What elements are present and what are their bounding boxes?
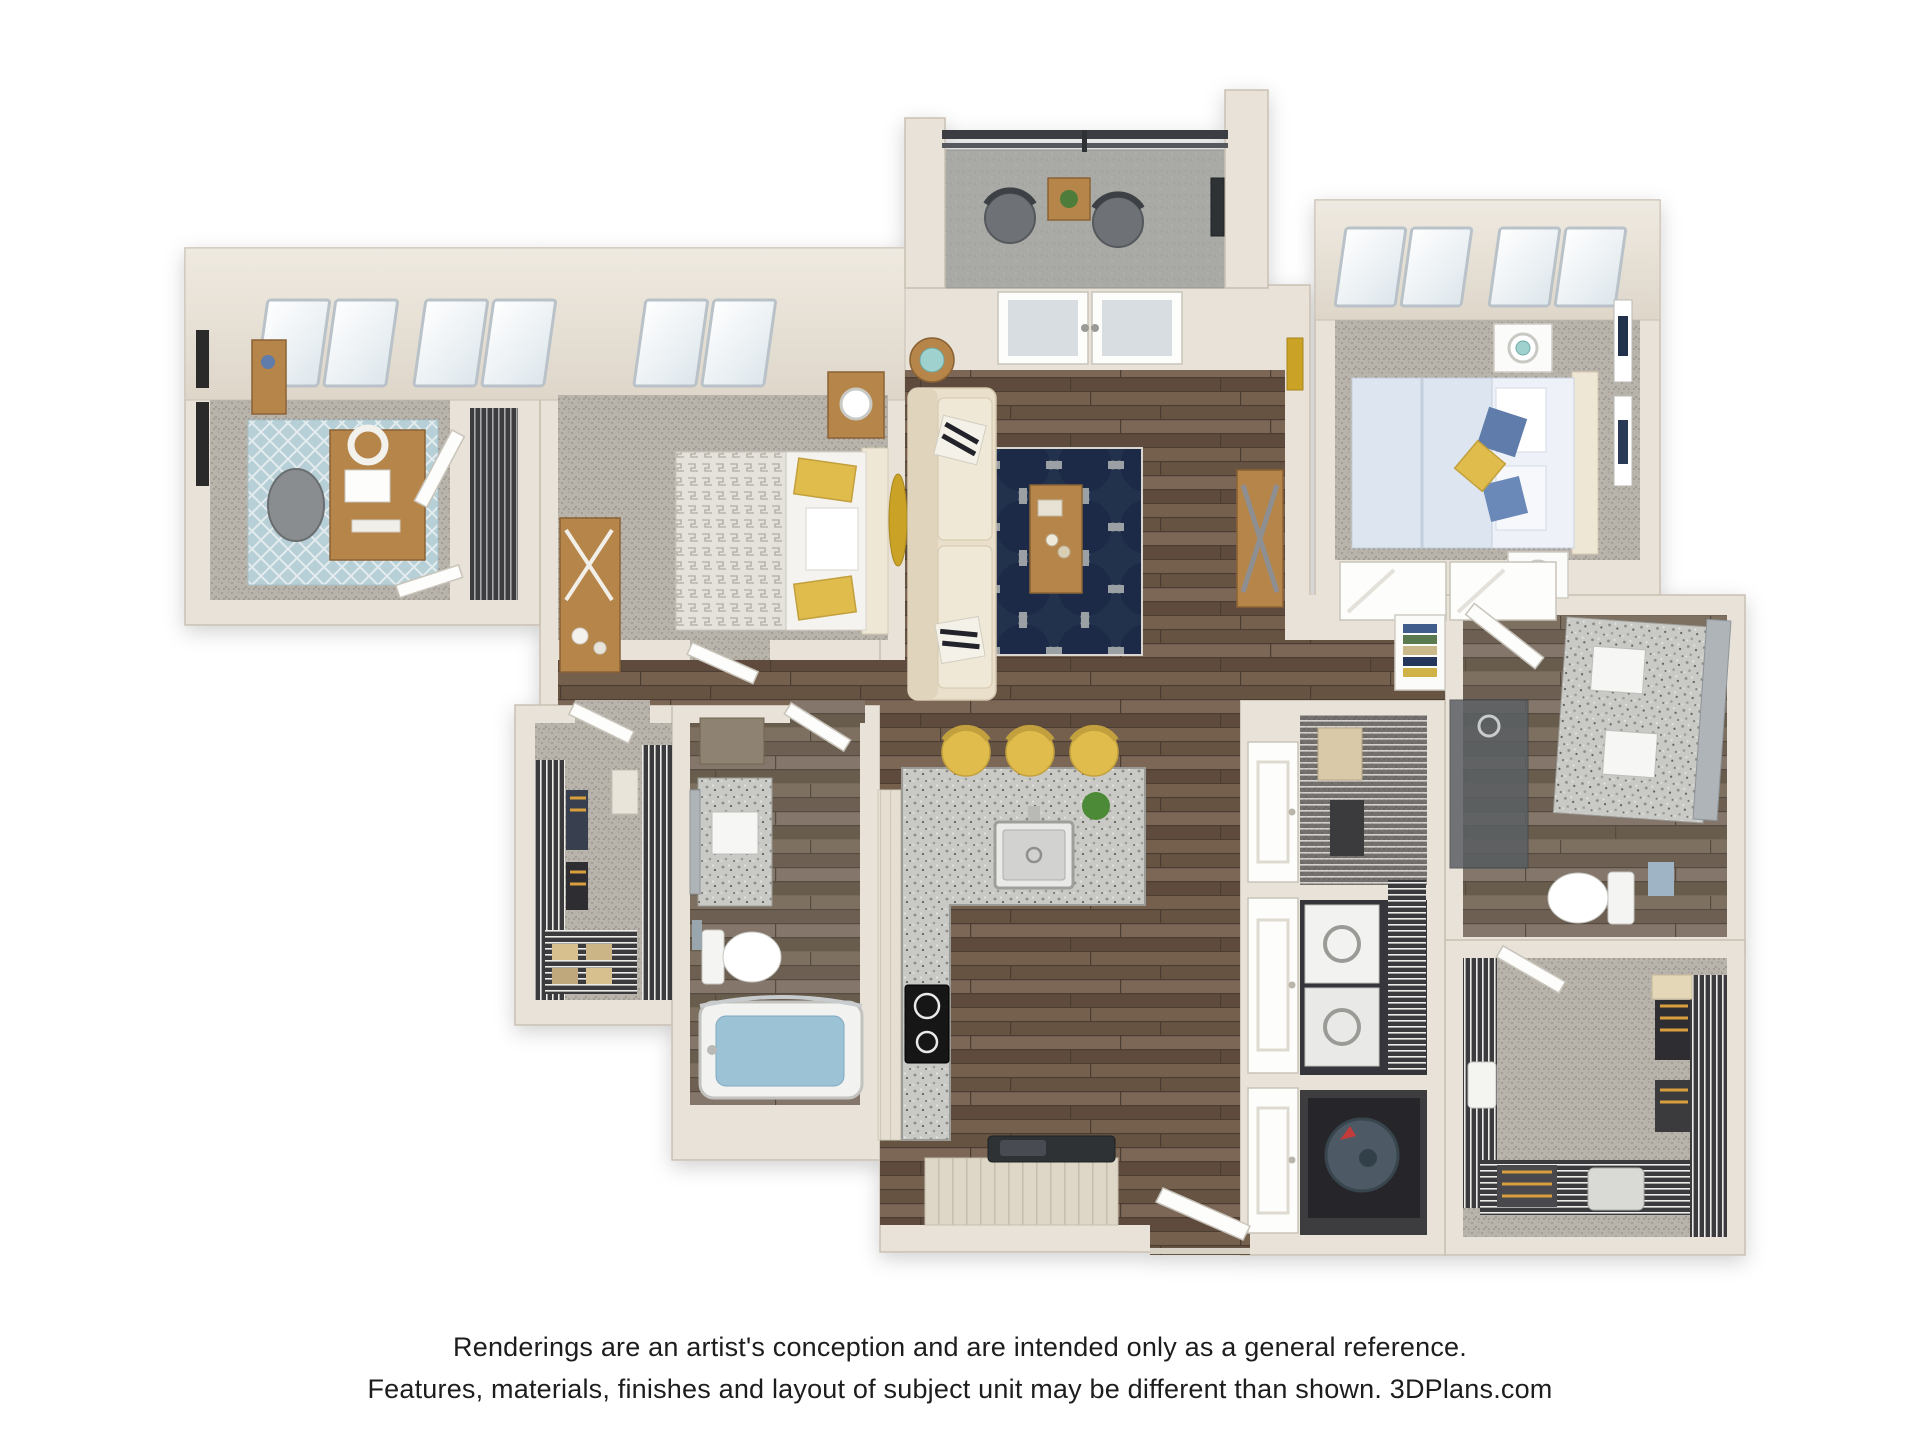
hall-right <box>1395 615 1445 690</box>
patio-chair-right <box>1093 194 1143 247</box>
closet1-towels <box>612 770 638 814</box>
entry-threshold <box>1150 1248 1250 1254</box>
coffee-table-mug-2 <box>1058 546 1070 558</box>
office-laptop <box>345 470 390 502</box>
floor-plan-page: Renderings are an artist's conception an… <box>0 0 1920 1440</box>
kitchen-faucet <box>1028 806 1040 820</box>
entry-shiplap-wall <box>925 1158 1118 1225</box>
pantry-basket <box>1318 728 1362 780</box>
office-shelf-decor <box>261 355 275 369</box>
pantry-items <box>1330 800 1364 856</box>
patio-chair-left <box>985 190 1035 243</box>
coffee-table-magazine <box>1038 500 1062 516</box>
bed1-pillow-white <box>806 508 858 570</box>
living-side-table <box>910 338 954 382</box>
hall-bookshelf-books <box>1403 624 1437 677</box>
ledge-gold-books <box>1287 338 1303 390</box>
french-door-glass-left <box>1008 300 1078 356</box>
door-handle-icon <box>1091 324 1099 332</box>
bath2-sink-1 <box>1591 646 1646 694</box>
bath2-towel <box>1648 862 1674 896</box>
cooktop-icon <box>905 985 949 1063</box>
kitchen-plant-icon <box>1082 792 1110 820</box>
office-closet-shelving <box>470 408 518 600</box>
closet1-shoe-shelf <box>545 930 637 994</box>
kitchen-bar-stools <box>942 728 1118 776</box>
bathtub-icon <box>700 997 862 1098</box>
living-table-lamp <box>920 348 944 372</box>
office-wall-art-2 <box>196 402 209 486</box>
entry-bench-cushion <box>1000 1140 1046 1156</box>
bath2-vanity <box>1553 617 1731 823</box>
tub-faucet <box>707 1045 717 1055</box>
disclaimer-line-2: Features, materials, finishes and layout… <box>0 1368 1920 1410</box>
french-door-glass-right <box>1102 300 1172 356</box>
bed1-lamp <box>841 389 871 419</box>
utility-column-doors <box>1248 742 1298 1233</box>
bed2-art-2 <box>1618 420 1628 464</box>
bed2-nightstand-top <box>1494 324 1552 372</box>
office-wall-art-1 <box>196 330 209 388</box>
kitchen-cabinets-west <box>878 790 904 1140</box>
floor-plan-svg <box>0 0 1920 1310</box>
coffee-table <box>1030 485 1082 593</box>
sofa-pillow-striped-2 <box>935 616 985 663</box>
living-round-gold-mirror <box>889 474 907 566</box>
bath2-shower-glass <box>1450 700 1528 868</box>
toilet-icon <box>702 930 781 984</box>
bath1-vanity <box>690 778 772 906</box>
bath2-sink-2 <box>1603 730 1658 778</box>
balcony-tv <box>1211 178 1224 236</box>
balcony <box>905 90 1268 288</box>
plan-root <box>185 90 1745 1255</box>
laundry-shelf <box>1388 880 1426 1070</box>
bath1-mirror <box>690 790 700 894</box>
bed2-art-1 <box>1618 316 1628 356</box>
bed1-pillow-yellow-2 <box>794 576 856 620</box>
media-console <box>1237 470 1283 607</box>
water-heater-icon <box>1308 1098 1420 1218</box>
bed1-pillow-yellow-1 <box>794 458 856 502</box>
balcony-wall-left <box>905 118 945 288</box>
bath1-towels <box>692 920 702 950</box>
patio-table <box>1048 178 1090 220</box>
closet2-suitcase <box>1588 1168 1644 1210</box>
bed2-headboard <box>1572 372 1598 554</box>
door-handle-icon <box>1081 324 1089 332</box>
living-sofa <box>908 388 996 700</box>
bath2-toilet <box>1548 872 1634 924</box>
disclaimer-line-1: Renderings are an artist's conception an… <box>0 1326 1920 1368</box>
balcony-railing-post <box>1082 130 1087 152</box>
closet1-shelf-right <box>642 745 672 1000</box>
office-chair <box>268 469 324 541</box>
plant-icon <box>1060 190 1078 208</box>
office-books <box>352 520 400 532</box>
floor-plan-rendering <box>0 0 1920 1310</box>
disclaimer-caption: Renderings are an artist's conception an… <box>0 1326 1920 1410</box>
bed1-dresser <box>560 518 620 672</box>
balcony-wall-right <box>1225 90 1268 288</box>
utility-column <box>1248 715 1427 1233</box>
closet2-hamper <box>1468 1062 1496 1108</box>
closet2-shelf-right <box>1690 975 1727 1237</box>
bath1-sink <box>712 812 758 854</box>
bath1-cabinet <box>700 718 764 764</box>
office-wall-shelf <box>252 340 286 414</box>
bed1-duvet-patterned <box>676 452 786 630</box>
coffee-table-mug-1 <box>1046 534 1058 546</box>
